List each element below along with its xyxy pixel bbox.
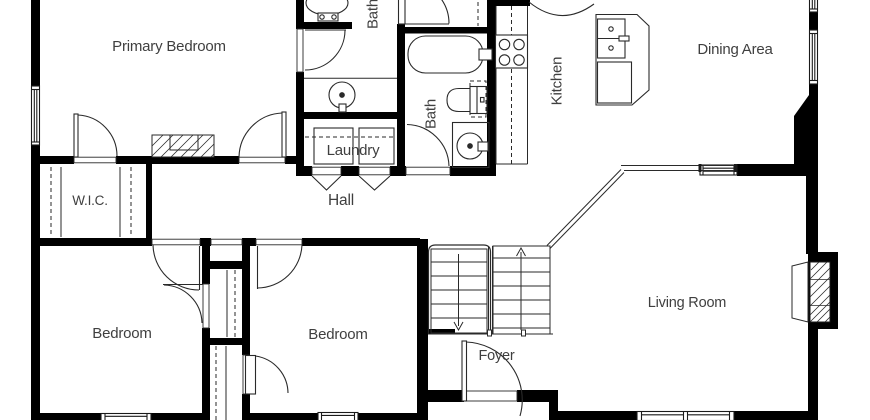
svg-text:Kitchen: Kitchen	[549, 57, 566, 106]
svg-text:Hall: Hall	[328, 192, 354, 209]
svg-text:Bath: Bath	[423, 99, 440, 129]
svg-text:Foyer: Foyer	[478, 348, 514, 364]
svg-text:Dining Area: Dining Area	[697, 41, 773, 58]
svg-text:W.I.C.: W.I.C.	[72, 193, 108, 208]
svg-text:Laundry: Laundry	[327, 142, 381, 159]
svg-text:Bath: Bath	[365, 0, 382, 29]
svg-text:Living Room: Living Room	[648, 295, 727, 311]
svg-text:Bedroom: Bedroom	[308, 326, 367, 343]
svg-text:Bedroom: Bedroom	[92, 325, 151, 342]
svg-text:Primary Bedroom: Primary Bedroom	[112, 38, 226, 55]
